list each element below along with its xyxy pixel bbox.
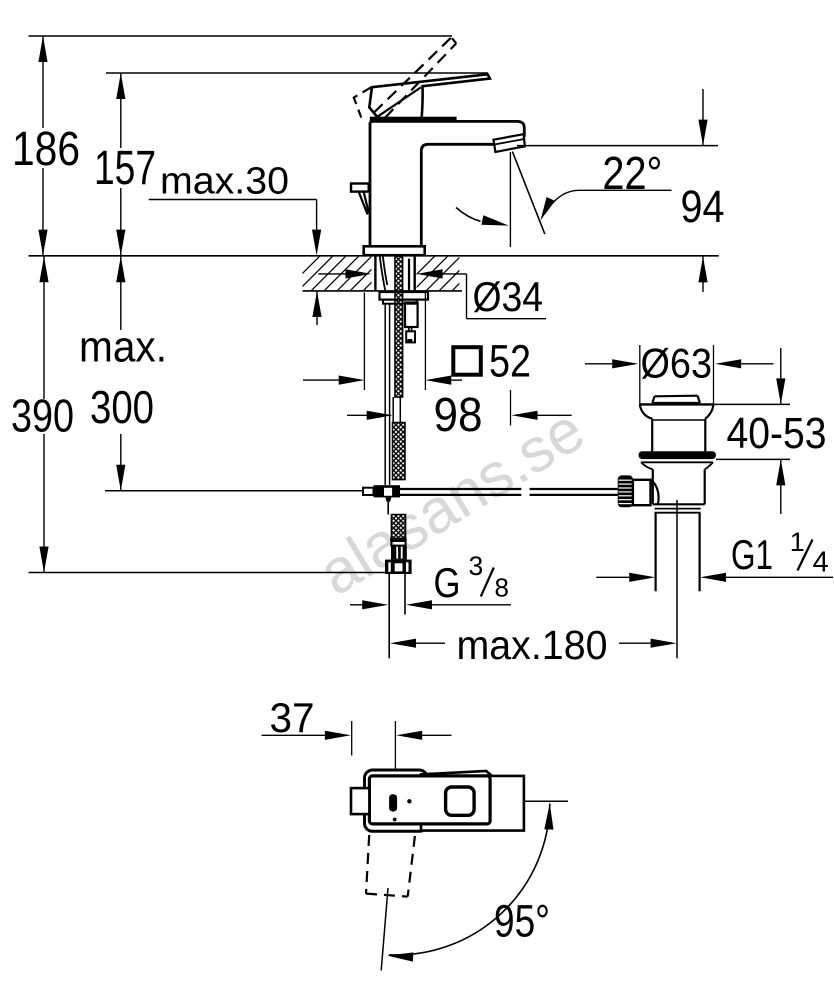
svg-text:max.180: max.180 bbox=[457, 622, 608, 668]
svg-text:95°: 95° bbox=[494, 895, 550, 946]
svg-text:52: 52 bbox=[489, 336, 531, 387]
svg-text:157: 157 bbox=[94, 142, 156, 195]
svg-text:300: 300 bbox=[90, 381, 154, 433]
svg-text:8: 8 bbox=[495, 572, 509, 602]
svg-text:40-53: 40-53 bbox=[727, 409, 827, 458]
svg-text:186: 186 bbox=[12, 123, 80, 176]
svg-text:max.30: max.30 bbox=[160, 161, 289, 203]
svg-text:94: 94 bbox=[681, 181, 725, 232]
svg-text:G1: G1 bbox=[731, 531, 773, 578]
svg-text:390: 390 bbox=[11, 390, 74, 442]
svg-text:max.: max. bbox=[79, 323, 167, 372]
svg-text:G: G bbox=[434, 559, 461, 606]
svg-text:37: 37 bbox=[270, 694, 315, 741]
svg-text:4: 4 bbox=[813, 546, 829, 578]
svg-text:3: 3 bbox=[469, 551, 484, 581]
svg-text:98: 98 bbox=[434, 389, 483, 442]
svg-text:Ø63: Ø63 bbox=[641, 340, 713, 387]
svg-text:1: 1 bbox=[790, 527, 805, 557]
svg-text:Ø34: Ø34 bbox=[473, 273, 544, 320]
